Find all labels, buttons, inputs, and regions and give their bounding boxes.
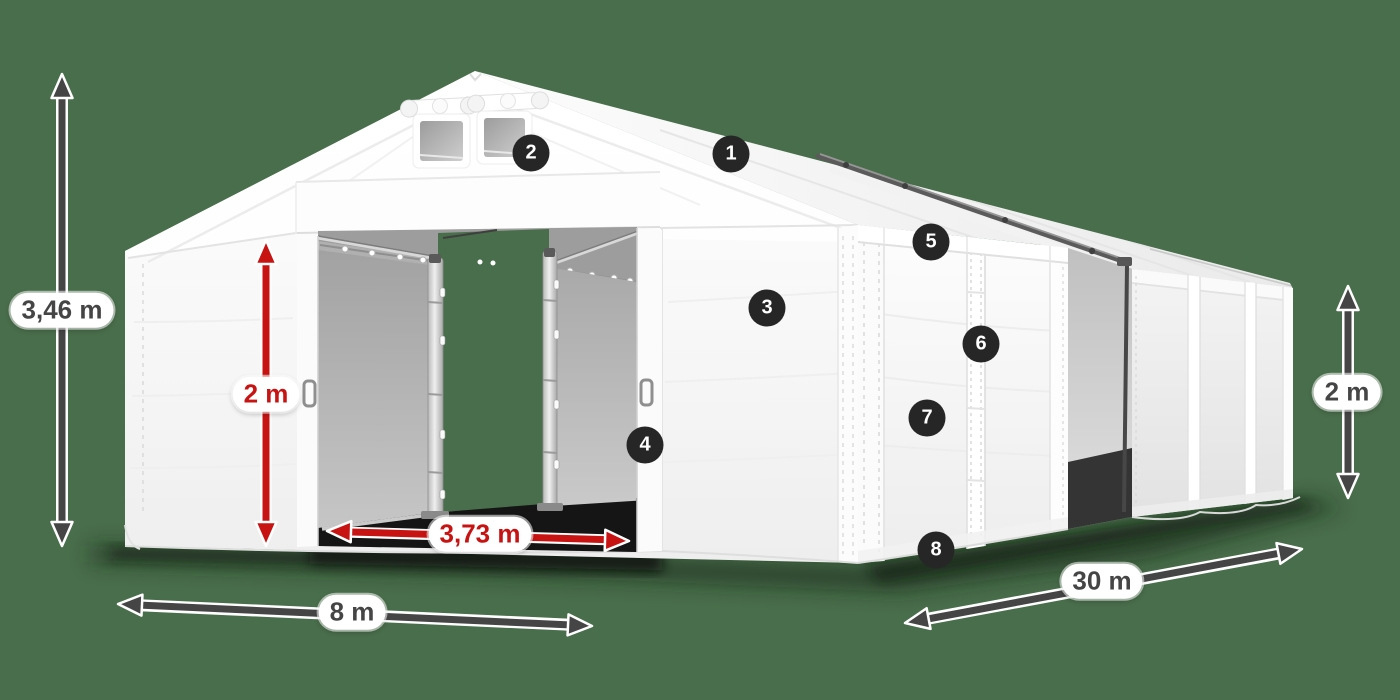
dimension-label-door-height: 2 m xyxy=(233,377,300,412)
feature-marker-5: 5 xyxy=(913,224,950,261)
feature-marker-2: 2 xyxy=(513,135,550,172)
door-edge-left xyxy=(297,234,318,547)
door-edge-right xyxy=(637,228,662,552)
door-right-panel xyxy=(549,267,637,504)
side-wall-front-section xyxy=(858,225,1068,563)
feature-marker-4: 4 xyxy=(627,427,664,464)
feature-marker-1: 1 xyxy=(713,136,750,173)
tent-dimensions-diagram: 3,46 m 2 m 3,73 m 8 m 30 m 2 m 1 2 3 4 5… xyxy=(0,0,1400,700)
dimension-label-door-width: 3,73 m xyxy=(429,517,532,552)
feature-marker-8: 8 xyxy=(918,532,955,569)
feature-marker-3: 3 xyxy=(749,290,786,327)
dimension-label-front-width: 8 m xyxy=(319,595,386,630)
door-left-panel xyxy=(318,250,430,530)
dimension-label-side-length: 30 m xyxy=(1061,564,1142,599)
dimension-label-total-height: 3,46 m xyxy=(11,293,114,328)
vent-window-left xyxy=(413,114,470,168)
tent-illustration xyxy=(0,0,1400,700)
dimension-label-side-height: 2 m xyxy=(1314,375,1381,410)
section-gap-opening xyxy=(1068,248,1132,529)
feature-marker-7: 7 xyxy=(909,400,946,437)
door-opening xyxy=(318,227,638,552)
entrance-header-beam xyxy=(296,172,660,234)
feature-marker-6: 6 xyxy=(963,326,1000,363)
side-wall-rear-sections xyxy=(1132,269,1300,519)
